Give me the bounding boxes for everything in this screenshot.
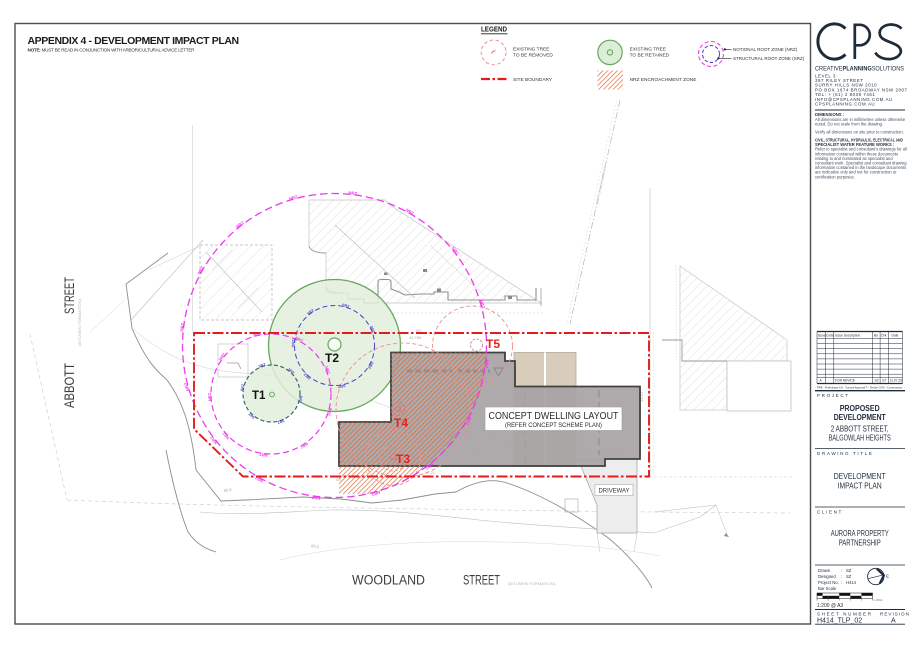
svg-text::: : (841, 580, 842, 585)
svg-text:Code: Code (826, 334, 834, 338)
svg-text:noted. Do not scale from the d: noted. Do not scale from the drawing. (815, 122, 883, 127)
svg-text:BALGOWLAH HEIGHTS: BALGOWLAH HEIGHTS (829, 434, 891, 443)
svg-text:STREET: STREET (463, 573, 500, 588)
svg-text:(REFER CONCEPT SCHEME PLAN): (REFER CONCEPT SCHEME PLAN) (505, 422, 602, 429)
svg-text:PROPOSED: PROPOSED (840, 404, 880, 413)
svg-text:Chk: Chk (881, 334, 887, 338)
svg-text:FOR ADVICE: FOR ADVICE (835, 379, 856, 383)
svg-text:NRZ: NRZ (258, 452, 267, 458)
svg-text:DEVELOPMENT: DEVELOPMENT (834, 413, 886, 422)
svg-text:LEGEND: LEGEND (481, 25, 507, 34)
svg-text:SRZ: SRZ (291, 339, 295, 347)
svg-text:CONCEPT DWELLING LAYOUT: CONCEPT DWELLING LAYOUT (489, 410, 619, 422)
svg-text:TO BE RETAINED: TO BE RETAINED (630, 53, 670, 59)
svg-text:WOODLAND: WOODLAND (352, 573, 425, 588)
svg-text:2 ABBOTT STREET,: 2 ABBOTT STREET, (831, 425, 889, 434)
svg-text:Date: Date (892, 334, 899, 338)
svg-text:Project No.: Project No. (818, 580, 839, 585)
svg-text:T2: T2 (325, 351, 339, 365)
svg-text:NRZ: NRZ (207, 392, 212, 401)
svg-text:T3: T3 (396, 452, 410, 466)
svg-text:ABBOTT: ABBOTT (62, 363, 77, 408)
svg-text:T1: T1 (252, 390, 266, 402)
svg-text:NOTE: MUST BE READ IN CONJUNCT: NOTE: MUST BE READ IN CONJUNCTION WITH A… (28, 48, 196, 53)
svg-text:IMPACT PLAN: IMPACT PLAN (838, 482, 882, 491)
svg-text:T4: T4 (394, 416, 408, 430)
svg-text:Drawn: Drawn (818, 568, 831, 573)
svg-text:APPENDIX 4 - DEVELOPMENT IMPAC: APPENDIX 4 - DEVELOPMENT IMPACT PLAN (28, 35, 240, 47)
svg-text:A: A (891, 618, 896, 625)
svg-text:EXISTING TREE: EXISTING TREE (630, 47, 666, 53)
svg-text:DEVELOPMENT: DEVELOPMENT (834, 472, 886, 481)
svg-text:AURORA PROPERTY: AURORA PROPERTY (831, 529, 889, 538)
svg-text:DRIVEWAY: DRIVEWAY (599, 488, 630, 495)
svg-text:PARTNERSHIP: PARTNERSHIP (839, 539, 881, 548)
svg-text:-: - (828, 379, 829, 383)
svg-text:NRZ ENCROACHMENT ZONE: NRZ ENCROACHMENT ZONE (630, 77, 697, 83)
svg-text:T5: T5 (486, 337, 500, 351)
svg-text:SZ: SZ (846, 574, 852, 579)
svg-text:Bar Scale: Bar Scale (818, 586, 837, 591)
svg-text:CPSPLANNING.COM.AU: CPSPLANNING.COM.AU (815, 102, 875, 107)
svg-text:PROJECT: PROJECT (817, 393, 850, 398)
svg-text:NOTIONAL ROOT ZONE (NRZ): NOTIONAL ROOT ZONE (NRZ) (733, 47, 798, 52)
svg-text:(BITUMEN FORMATION): (BITUMEN FORMATION) (77, 298, 82, 346)
svg-text:SZ: SZ (846, 568, 852, 573)
svg-text:STRUCTURAL ROOT ZONE (SRZ): STRUCTURAL ROOT ZONE (SRZ) (733, 56, 805, 61)
svg-text:PRE - Preliminary CA - Counc: PRE - Preliminary CA - Council Approval … (817, 386, 902, 390)
svg-text:(BITUMEN FORMATION): (BITUMEN FORMATION) (508, 581, 556, 586)
svg-text:CREATIVEPLANNINGSOLUTIONS: CREATIVEPLANNINGSOLUTIONS (815, 66, 904, 73)
svg-text:CLIENT: CLIENT (817, 510, 843, 515)
svg-text:H414: H414 (846, 580, 857, 585)
svg-text:TO BE REMOVED: TO BE REMOVED (513, 53, 553, 59)
svg-text:Designed: Designed (818, 574, 836, 579)
svg-text:By: By (874, 334, 878, 338)
svg-text:Issue Description: Issue Description (835, 334, 860, 338)
svg-text:GT: GT (882, 379, 887, 383)
svg-text:1.000m: 1.000m (874, 598, 884, 602)
svg-text:certification purposes.: certification purposes. (815, 174, 855, 179)
svg-text:SZ: SZ (875, 379, 879, 383)
svg-text::: : (841, 574, 842, 579)
svg-text:SITE BOUNDARY: SITE BOUNDARY (513, 77, 553, 83)
svg-text:41.785: 41.785 (409, 335, 422, 340)
svg-text:1:200 @ A3: 1:200 @ A3 (817, 603, 843, 609)
svg-text:EXISTING TREE: EXISTING TREE (513, 47, 549, 53)
svg-text::: : (841, 568, 842, 573)
svg-text:H414_TLP_02: H414_TLP_02 (817, 618, 862, 625)
svg-text:Issue: Issue (818, 334, 826, 338)
svg-text:REVISION: REVISION (880, 612, 910, 617)
svg-text:11.07.25: 11.07.25 (890, 379, 903, 383)
svg-text:Verify all dimensions on site: Verify all dimensions on site prior to c… (815, 130, 904, 135)
svg-text:STREET: STREET (62, 277, 77, 314)
svg-text:DRAWING TITLE: DRAWING TITLE (817, 451, 874, 456)
svg-text:SHEET NUMBER: SHEET NUMBER (817, 612, 873, 617)
